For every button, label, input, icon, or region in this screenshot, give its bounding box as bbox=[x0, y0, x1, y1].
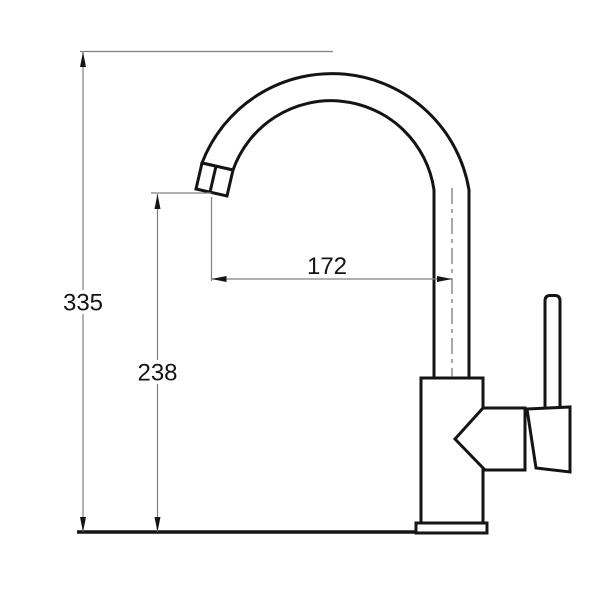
arrowhead-up-238 bbox=[155, 194, 161, 209]
technical-drawing-canvas: 335 238 172 bbox=[0, 0, 600, 600]
arrowhead-left-172 bbox=[212, 276, 227, 282]
faucet-dimension-drawing: 335 238 172 bbox=[0, 0, 600, 600]
arrowhead-down-238 bbox=[155, 517, 161, 532]
lever-handle-base bbox=[527, 407, 570, 472]
dimension-overall-height: 335 bbox=[61, 52, 105, 532]
faucet-aerator bbox=[196, 163, 233, 196]
faucet-base-plate bbox=[416, 523, 487, 533]
faucet-outline bbox=[77, 74, 570, 533]
dimension-label-spout-reach: 172 bbox=[307, 253, 347, 280]
dimension-outlet-height: 238 bbox=[136, 194, 180, 532]
lever-handle-stick bbox=[545, 296, 560, 411]
arrowhead-down-335 bbox=[80, 517, 86, 532]
faucet-spout-gooseneck bbox=[202, 74, 469, 378]
dimension-label-overall-height: 335 bbox=[63, 290, 103, 317]
dimension-spout-reach: 172 bbox=[212, 253, 453, 282]
arrowhead-up-335 bbox=[80, 52, 86, 67]
dimension-label-outlet-height: 238 bbox=[137, 360, 177, 387]
